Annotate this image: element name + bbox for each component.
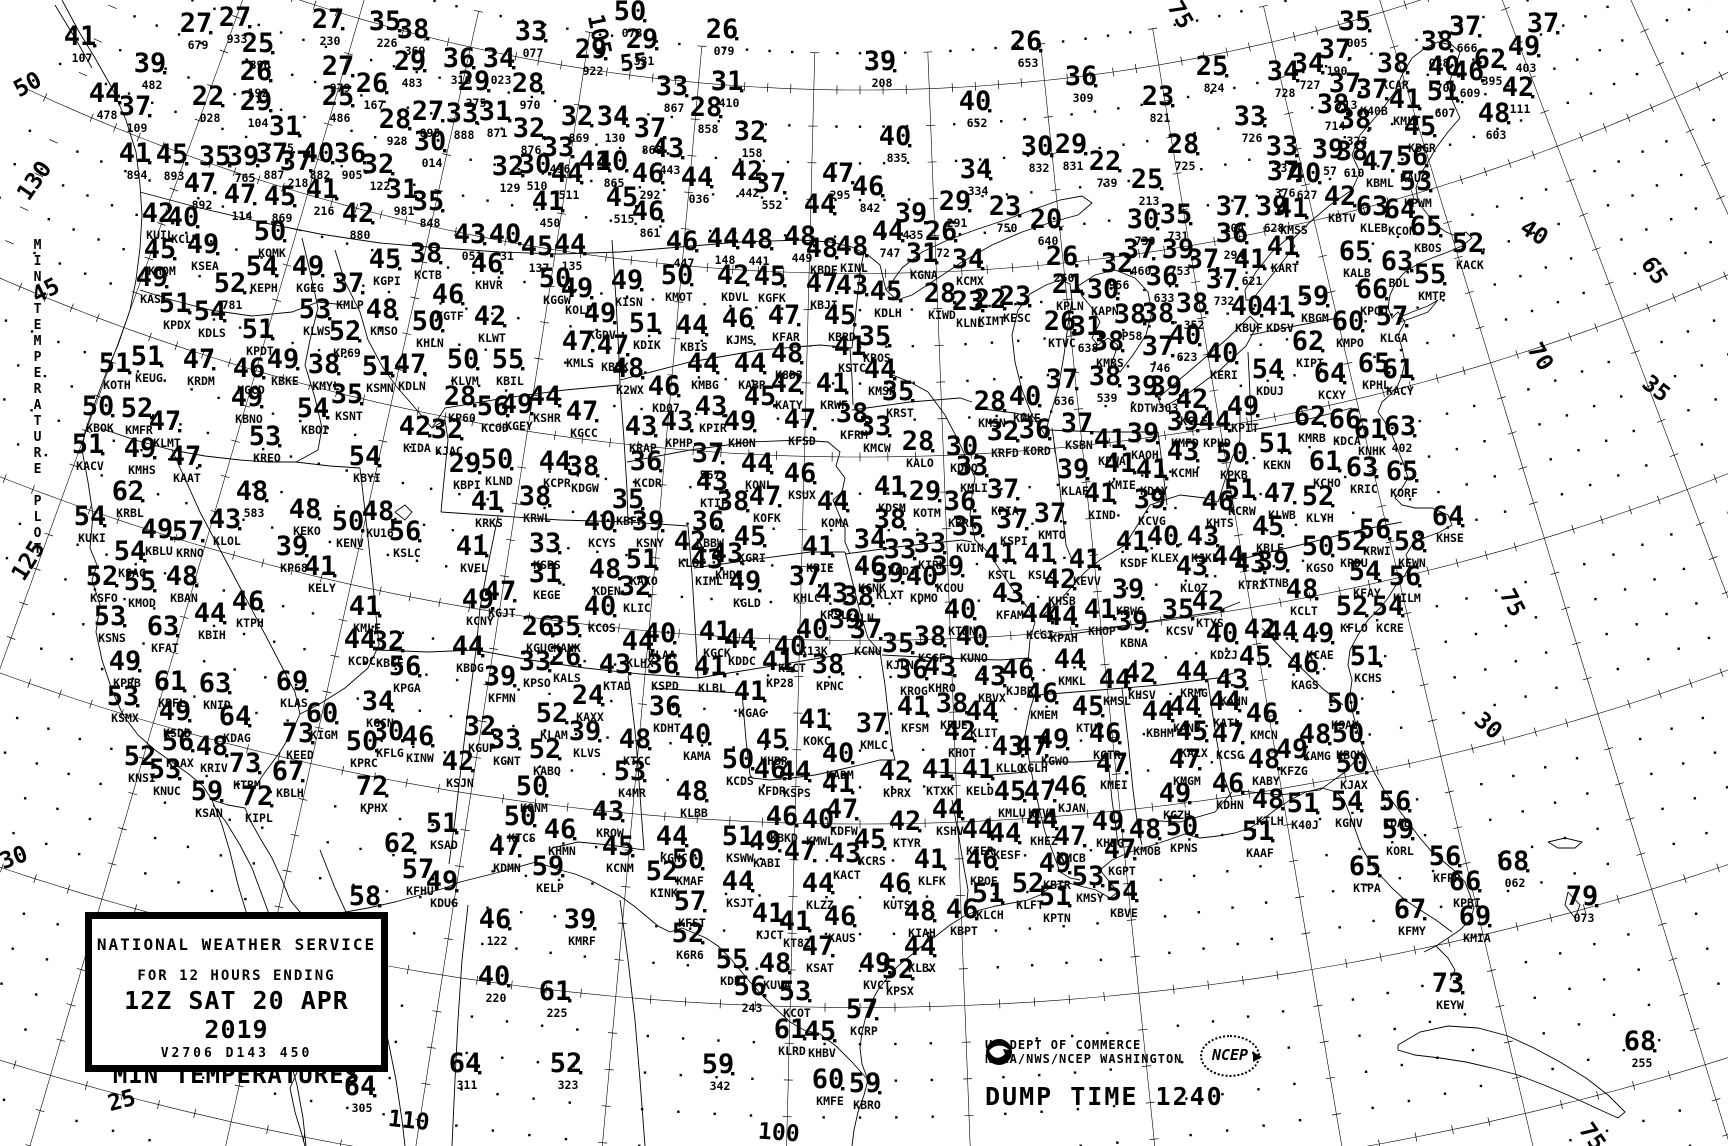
- station-temp: 63: [199, 668, 232, 699]
- station-temp: 38: [410, 238, 443, 269]
- station-id: 653: [1018, 56, 1039, 70]
- station-dot: [1101, 884, 1104, 887]
- station-dot: [558, 404, 561, 407]
- station-temp: 50: [722, 744, 755, 775]
- station-id: KOTH: [103, 378, 131, 392]
- station-plot: 33KPSO: [519, 646, 552, 690]
- station-plot: 52KFLO: [1336, 591, 1369, 635]
- station-temp: 28: [1167, 129, 1200, 160]
- station-dot: [260, 405, 263, 408]
- station-dot: [1361, 329, 1364, 332]
- station-temp: 40: [584, 591, 617, 622]
- station-dot: [883, 547, 886, 550]
- station-temp: 45: [144, 234, 177, 265]
- station-dot: [1295, 639, 1298, 642]
- station-temp: 39: [1167, 406, 1200, 437]
- station-dot: [1018, 841, 1021, 844]
- station-dot: [141, 499, 144, 502]
- station-temp: 38: [1339, 104, 1372, 135]
- station-dot: [753, 647, 756, 650]
- station-dot: [808, 779, 811, 782]
- station-dot: [911, 399, 914, 402]
- station-id: KGNT: [493, 754, 521, 768]
- station-temp: 44: [779, 756, 812, 787]
- station-dot: [1101, 714, 1104, 717]
- station-plot: 49KGLD: [729, 566, 762, 610]
- station-dot: [926, 714, 929, 717]
- station-plot: 65KBOS: [1410, 211, 1443, 255]
- station-temp: 28: [974, 386, 1007, 417]
- station-id: KGLD: [733, 596, 761, 610]
- station-id: KMSY: [1076, 891, 1104, 905]
- station-temp: 29: [240, 86, 273, 117]
- station-temp: 35: [1339, 6, 1372, 37]
- station-temp: 53: [614, 756, 647, 787]
- station-temp: 37: [987, 474, 1020, 505]
- station-dot: [153, 456, 156, 459]
- station-temp: 38: [914, 621, 947, 652]
- station-id: KRFD: [991, 446, 1019, 460]
- station-temp: 61: [1309, 446, 1342, 477]
- station-id: KDLS: [198, 326, 226, 340]
- station-plot: 39KMRF: [564, 904, 597, 948]
- station-dot: [981, 534, 984, 537]
- station-temp: 61: [154, 666, 187, 697]
- station-temp: 39: [632, 506, 665, 537]
- station-id: KLYH: [1306, 511, 1334, 525]
- station-plot: 45KGPI: [369, 244, 402, 288]
- station-dot: [865, 293, 868, 296]
- station-id: KDZJ: [1210, 648, 1238, 662]
- station-plot: 53KSNS: [94, 601, 127, 645]
- station-dot: [1176, 544, 1179, 547]
- station-temp: 46: [1212, 768, 1245, 799]
- station-plot: 48KMSO: [366, 294, 399, 338]
- station-dot: [173, 257, 176, 260]
- station-id: KPHP: [665, 436, 693, 450]
- station-dot: [721, 461, 724, 464]
- station-temp: 54: [297, 393, 330, 424]
- station-temp: 25: [322, 81, 355, 112]
- station-id: KRNO: [176, 546, 204, 560]
- station-dot: [271, 337, 274, 340]
- station-id: K2WX: [616, 383, 644, 397]
- station-temp: 41: [306, 174, 339, 205]
- station-temp: 62: [112, 476, 145, 507]
- station-id: 894: [127, 168, 148, 182]
- station-dot: [1418, 107, 1421, 110]
- station-temp: 36: [649, 691, 682, 722]
- station-id: 230: [320, 34, 341, 48]
- station-temp: 56: [1379, 786, 1412, 817]
- legend-product-codes: V2706 D143 450: [92, 1046, 381, 1061]
- station-id: KSHV: [936, 824, 964, 838]
- station-temp: 32: [513, 113, 546, 144]
- station-id: 922: [583, 64, 604, 78]
- station-id: KBKE: [271, 374, 299, 388]
- station-temp: 62: [1292, 326, 1325, 357]
- station-dot: [973, 739, 976, 742]
- station-temp: 44: [1176, 656, 1209, 687]
- station-temp: 44: [1046, 601, 1079, 632]
- station-plot: 59342: [702, 1049, 735, 1093]
- station-id: KEGE: [533, 588, 561, 602]
- station-temp: 52: [672, 918, 705, 949]
- station-temp: 32: [561, 101, 594, 132]
- station-plot: 46KJMS: [722, 303, 755, 347]
- ncep-logo: NCEP: [1200, 1035, 1260, 1077]
- station-id: KRDM: [187, 374, 215, 388]
- station-id: KSNS: [98, 631, 126, 645]
- legend-box: NATIONAL WEATHER SERVICE FOR 12 HOURS EN…: [85, 912, 388, 1072]
- station-temp: 40: [1206, 338, 1239, 369]
- station-id: 603: [1486, 128, 1507, 142]
- station-id: 781: [222, 298, 243, 312]
- station-plot: 44KBDG: [452, 631, 485, 675]
- station-dot: [1413, 434, 1416, 437]
- station-plot: 28725: [1167, 129, 1200, 173]
- station-temp: 49: [1227, 391, 1260, 422]
- station-dot: [1315, 597, 1318, 600]
- station-temp: 35: [331, 379, 364, 410]
- station-plot: 46122: [479, 904, 512, 948]
- station-dot: [1316, 671, 1319, 674]
- station-temp: 37: [1449, 11, 1482, 42]
- station-plot: 45KHBV: [804, 1016, 837, 1060]
- station-dot: [846, 509, 849, 512]
- station-temp: 47: [826, 794, 859, 825]
- station-dot: [1305, 216, 1308, 219]
- station-dot: [558, 581, 561, 584]
- station-dot: [763, 371, 766, 374]
- station-dot: [185, 162, 188, 165]
- station-temp: 46: [722, 303, 755, 334]
- station-temp: 63: [1381, 246, 1414, 277]
- station-dot: [841, 1087, 844, 1090]
- station-temp: 34: [1292, 48, 1325, 79]
- station-plot: 54KBYI: [349, 441, 382, 485]
- station-temp: 39: [227, 141, 260, 172]
- station-temp: 41: [456, 531, 489, 562]
- station-dot: [500, 509, 503, 512]
- station-id: 130: [605, 131, 626, 145]
- station-plot: 62KMRB: [1294, 401, 1327, 445]
- station-dot: [1268, 664, 1271, 667]
- station-dot: [213, 191, 216, 194]
- station-dot: [1113, 501, 1116, 504]
- station-id: 821: [1150, 111, 1171, 125]
- station-temp: 42: [342, 198, 375, 229]
- station-plot: 37KSBN: [1061, 408, 1094, 452]
- station-dot: [476, 367, 479, 370]
- station-id: KMLC: [860, 738, 888, 752]
- station-temp: 45: [369, 244, 402, 275]
- station-dot: [176, 634, 179, 637]
- station-plot: 33KGNT: [489, 724, 522, 768]
- station-temp: 40: [956, 621, 989, 652]
- station-dot: [800, 391, 803, 394]
- station-temp: 48: [589, 554, 622, 585]
- station-id: KLBB: [680, 806, 708, 820]
- station-temp: 22: [192, 81, 225, 112]
- station-temp: 56: [162, 726, 195, 757]
- station-id: KGCC: [570, 426, 598, 440]
- station-plot: 47114: [224, 179, 257, 223]
- station-temp: 49: [1159, 778, 1192, 809]
- station-plot: 44KDDC: [724, 624, 757, 668]
- station-dot: [1118, 169, 1121, 172]
- station-dot: [138, 669, 141, 672]
- station-id: KGNV: [1335, 816, 1363, 830]
- station-dot: [1338, 469, 1341, 472]
- station-temp: 40: [1289, 158, 1322, 189]
- station-plot: 59KSAN: [191, 776, 224, 820]
- station-id: KISN: [615, 295, 643, 309]
- station-temp: 44: [724, 624, 757, 655]
- station-plot: 49KSEA: [187, 229, 220, 273]
- station-temp: 45: [156, 139, 189, 170]
- station-id: 342: [710, 1079, 731, 1093]
- station-id: KAAT: [173, 471, 201, 485]
- station-id: KBDG: [456, 661, 484, 675]
- station-id: KSUX: [788, 488, 816, 502]
- station-dot: [545, 794, 548, 797]
- station-plot: 51KACV: [72, 429, 105, 473]
- station-temp: 43: [711, 538, 744, 569]
- station-plot: 45KDLH: [870, 276, 903, 320]
- station-temp: 40: [1009, 381, 1042, 412]
- station-dot: [893, 69, 896, 72]
- station-dot: [518, 854, 521, 857]
- station-temp: 46: [1287, 648, 1320, 679]
- station-id: KSAT: [806, 961, 834, 975]
- station-dot: [373, 1094, 376, 1097]
- station-plot: 43KFAM: [992, 578, 1025, 622]
- station-dot: [661, 219, 664, 222]
- station-dot: [735, 37, 738, 40]
- station-id: 395: [1482, 74, 1503, 88]
- station-temp: 47: [484, 576, 517, 607]
- station-id: KIPL: [245, 811, 273, 825]
- station-temp: 50: [1332, 718, 1365, 749]
- station-dot: [736, 246, 739, 249]
- station-id: KRIV: [200, 761, 228, 775]
- station-temp: 79: [1566, 881, 1599, 912]
- station-id: KMKL: [1058, 674, 1086, 688]
- station-dot: [783, 284, 786, 287]
- station-temp: 56: [389, 516, 422, 547]
- station-dot: [1241, 791, 1244, 794]
- station-dot: [701, 867, 704, 870]
- station-dot: [701, 941, 704, 944]
- station-dot: [601, 703, 604, 706]
- station-plot: 51KSMN: [362, 351, 395, 395]
- station-temp: 47: [489, 831, 522, 862]
- station-id: KMSO: [370, 324, 398, 338]
- station-dot: [1066, 747, 1069, 750]
- station-id: KCSV: [1166, 624, 1194, 638]
- station-temp: 54: [1372, 591, 1405, 622]
- station-dot: [593, 927, 596, 930]
- station-temp: 52: [86, 561, 119, 592]
- station-temp: 33: [519, 646, 552, 677]
- station-temp: 35: [1160, 199, 1193, 230]
- station-temp: 47: [1212, 718, 1245, 749]
- station-dot: [1401, 614, 1404, 617]
- station-dot: [460, 437, 463, 440]
- station-temp: 58: [1394, 526, 1427, 557]
- station-plot: 43KPIR: [695, 391, 728, 435]
- station-dot: [223, 621, 226, 624]
- station-id: 726: [1242, 131, 1263, 145]
- station-plot: 51K40J: [1287, 788, 1320, 832]
- station-temp: 40: [1206, 618, 1239, 649]
- station-dot: [1135, 899, 1138, 902]
- station-temp: 42: [889, 806, 922, 837]
- station-dot: [985, 644, 988, 647]
- station-temp: 40: [879, 121, 912, 152]
- station-temp: 60: [1332, 306, 1365, 337]
- station-id: KTAD: [603, 679, 631, 693]
- legend-agency-title: NATIONAL WEATHER SERVICE: [92, 935, 381, 954]
- station-id: KLFK: [918, 874, 946, 888]
- station-dot: [908, 144, 911, 147]
- station-temp: 43: [209, 504, 242, 535]
- station-temp: 53: [779, 976, 812, 1007]
- station-dot: [1321, 71, 1324, 74]
- station-dot: [989, 177, 992, 180]
- station-plot: 37KCNU: [850, 614, 883, 658]
- station-temp: 51: [99, 348, 132, 379]
- station-id: KMOB: [1133, 844, 1161, 858]
- station-dot: [677, 394, 680, 397]
- station-plot: 41KRKS: [471, 486, 504, 530]
- station-dot: [1205, 311, 1208, 314]
- station-temp: 43: [454, 219, 487, 250]
- station-plot: 41KLFK: [914, 844, 947, 888]
- station-plot: 49KMHS: [124, 433, 157, 477]
- station-temp: 59: [532, 851, 565, 882]
- station-dot: [791, 669, 794, 672]
- station-plot: 44478: [89, 78, 122, 122]
- station-dot: [544, 39, 547, 42]
- station-temp: 46: [232, 586, 265, 617]
- station-id: KJMS: [726, 333, 754, 347]
- station-temp: 47: [822, 158, 855, 189]
- station-temp: 41: [984, 538, 1017, 569]
- station-id: KGPI: [373, 274, 401, 288]
- station-dot: [1481, 251, 1484, 254]
- station-id: KCMH: [1171, 466, 1199, 480]
- station-id: 122: [487, 934, 508, 948]
- station-id: 848: [420, 216, 441, 230]
- station-dot: [1245, 687, 1248, 690]
- station-dot: [408, 127, 411, 130]
- station-temp: 35: [859, 321, 892, 352]
- station-id: KBPT: [950, 924, 978, 938]
- station-id: KALO: [906, 456, 934, 470]
- station-id: KCLT: [1290, 604, 1318, 618]
- station-id: KSJN: [446, 776, 474, 790]
- station-plot: 48KLBB: [676, 776, 709, 820]
- station-dot: [716, 371, 719, 374]
- station-dot: [201, 539, 204, 542]
- station-temp: 51: [131, 341, 164, 372]
- station-plot: 46KDHN: [1212, 768, 1245, 812]
- station-dot: [903, 494, 906, 497]
- station-temp: 44: [1054, 644, 1087, 675]
- station-temp: 49: [187, 229, 220, 260]
- station-temp: 42: [1324, 181, 1357, 212]
- station-dot: [1418, 584, 1421, 587]
- station-dot: [1195, 834, 1198, 837]
- station-temp: 45: [754, 261, 787, 292]
- station-temp: 41: [1262, 291, 1295, 322]
- station-temp: 46: [233, 353, 266, 384]
- station-temp: 20: [1030, 204, 1063, 235]
- station-dot: [595, 419, 598, 422]
- station-temp: 39: [1116, 606, 1149, 637]
- station-dot: [1286, 569, 1289, 572]
- station-dot: [111, 414, 114, 417]
- station-dot: [1385, 297, 1388, 300]
- station-dot: [326, 416, 329, 419]
- station-id: KLWT: [478, 331, 506, 345]
- station-temp: 31: [906, 238, 939, 269]
- station-plot: 44KMBG: [687, 348, 720, 392]
- station-dot: [1408, 809, 1411, 812]
- station-plot: 47KBML: [1362, 146, 1395, 190]
- station-id: KELP: [536, 881, 564, 895]
- station-temp: 41: [532, 186, 565, 217]
- station-dot: [188, 311, 191, 314]
- station-id: KMHS: [128, 463, 156, 477]
- station-dot: [579, 1071, 582, 1074]
- station-id: KLBL: [698, 681, 726, 695]
- station-id: KIND: [1088, 508, 1116, 522]
- station-temp: 44: [817, 486, 850, 517]
- station-temp: 39: [564, 904, 597, 935]
- station-temp: 67: [1394, 894, 1427, 925]
- station-dot: [901, 239, 904, 242]
- station-dot: [1388, 537, 1391, 540]
- station-temp: 29: [1055, 129, 1088, 160]
- station-temp: 22: [1089, 146, 1122, 177]
- station-plot: 39KBNA: [1116, 606, 1149, 650]
- station-plot: 46861: [632, 196, 665, 240]
- station-temp: 27: [180, 8, 213, 39]
- station-temp: 47: [1169, 744, 1202, 775]
- station-temp: 47: [784, 404, 817, 435]
- station-temp: 41: [802, 531, 835, 562]
- station-dot: [673, 641, 676, 644]
- station-temp: 39: [569, 716, 602, 747]
- station-plot: 44KMKL: [1054, 644, 1087, 688]
- station-id: KBUF: [1235, 321, 1263, 335]
- station-plot: 52K6R6: [672, 918, 705, 962]
- station-temp: 49: [1037, 724, 1070, 755]
- station-plot: 41KLBL: [694, 651, 727, 695]
- station-id: KBTV: [1328, 211, 1356, 225]
- station-temp: 28: [690, 92, 723, 123]
- station-temp: 50: [661, 260, 694, 291]
- station-temp: 49: [292, 251, 325, 282]
- station-id: KESC: [1003, 311, 1031, 325]
- station-plot: 50KGSO: [1302, 531, 1335, 575]
- station-temp: 49: [109, 646, 142, 677]
- station-dot: [808, 999, 811, 1002]
- station-dot: [558, 757, 561, 760]
